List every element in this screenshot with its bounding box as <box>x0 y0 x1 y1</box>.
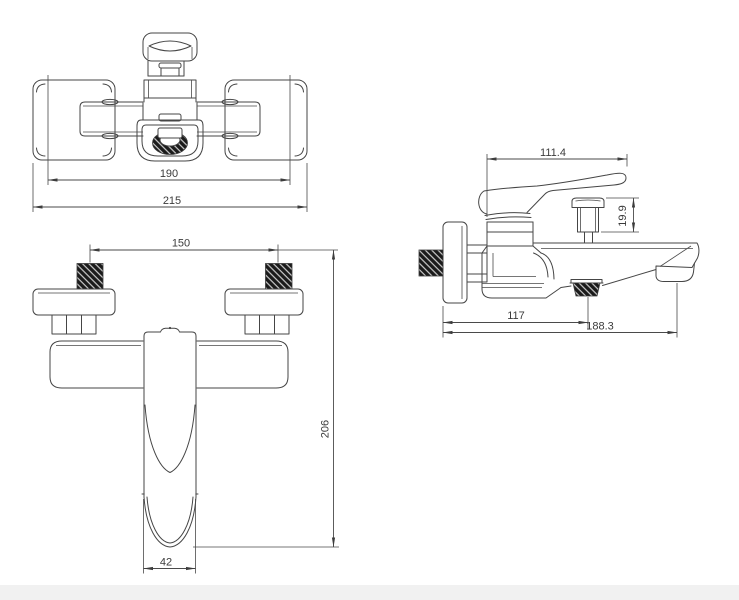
hex-nut-left <box>52 315 96 334</box>
valve-body-side <box>487 222 533 246</box>
wall-flange-side <box>443 222 467 303</box>
mounting-plate-right <box>225 80 307 160</box>
dim-label-206: 206 <box>320 420 332 438</box>
front-view: 150 206 42 <box>33 238 339 574</box>
body-flare <box>482 246 541 253</box>
plate-right-corner-detail <box>229 84 304 156</box>
valve-body-top-view <box>143 76 197 120</box>
technical-drawing-canvas: 190 215 <box>0 0 739 600</box>
dim-label-150: 150 <box>172 238 190 250</box>
handle-inner-tip <box>147 497 193 543</box>
drawing-svg: 190 215 <box>0 0 739 600</box>
body-bar-left <box>50 341 143 388</box>
dim-label-42: 42 <box>160 557 172 569</box>
handle-front-view <box>142 327 198 547</box>
spout-side <box>533 243 699 296</box>
dim-label-190: 190 <box>160 168 178 180</box>
side-ext-bottom <box>443 283 677 338</box>
plan-view: 190 215 <box>33 33 307 212</box>
elbow-body <box>482 253 561 298</box>
dim-label-117: 117 <box>507 310 525 322</box>
body-crossbar-left <box>80 102 143 136</box>
dim-label-188-3: 188.3 <box>586 321 614 333</box>
handle-top-view <box>143 33 197 76</box>
body-crossbar-right <box>197 102 260 136</box>
dim-label-19-9: 19.9 <box>617 205 629 226</box>
spout-top-view <box>137 114 203 161</box>
handle-pivot-dot <box>169 327 171 329</box>
cartridge-cap <box>485 213 533 222</box>
hex-nut-right <box>245 315 289 334</box>
dim-label-111-4: 111.4 <box>540 147 566 159</box>
threaded-inlet-right <box>266 264 293 290</box>
diverter-knob <box>572 198 604 243</box>
aerator-hatch-side <box>573 283 600 296</box>
handle-inner-curve <box>145 405 195 473</box>
dim-label-215: 215 <box>163 195 181 207</box>
body-bar-right <box>197 341 288 388</box>
side-view: 111.4 19.9 117 188.3 <box>419 147 699 338</box>
threaded-inlet-left <box>77 264 103 290</box>
scan-artifact-band <box>0 585 739 600</box>
spout-tip-cap <box>656 263 695 282</box>
front-ext-top <box>90 245 338 263</box>
threaded-inlet-side <box>419 250 443 276</box>
mounting-plate-left <box>33 80 115 160</box>
